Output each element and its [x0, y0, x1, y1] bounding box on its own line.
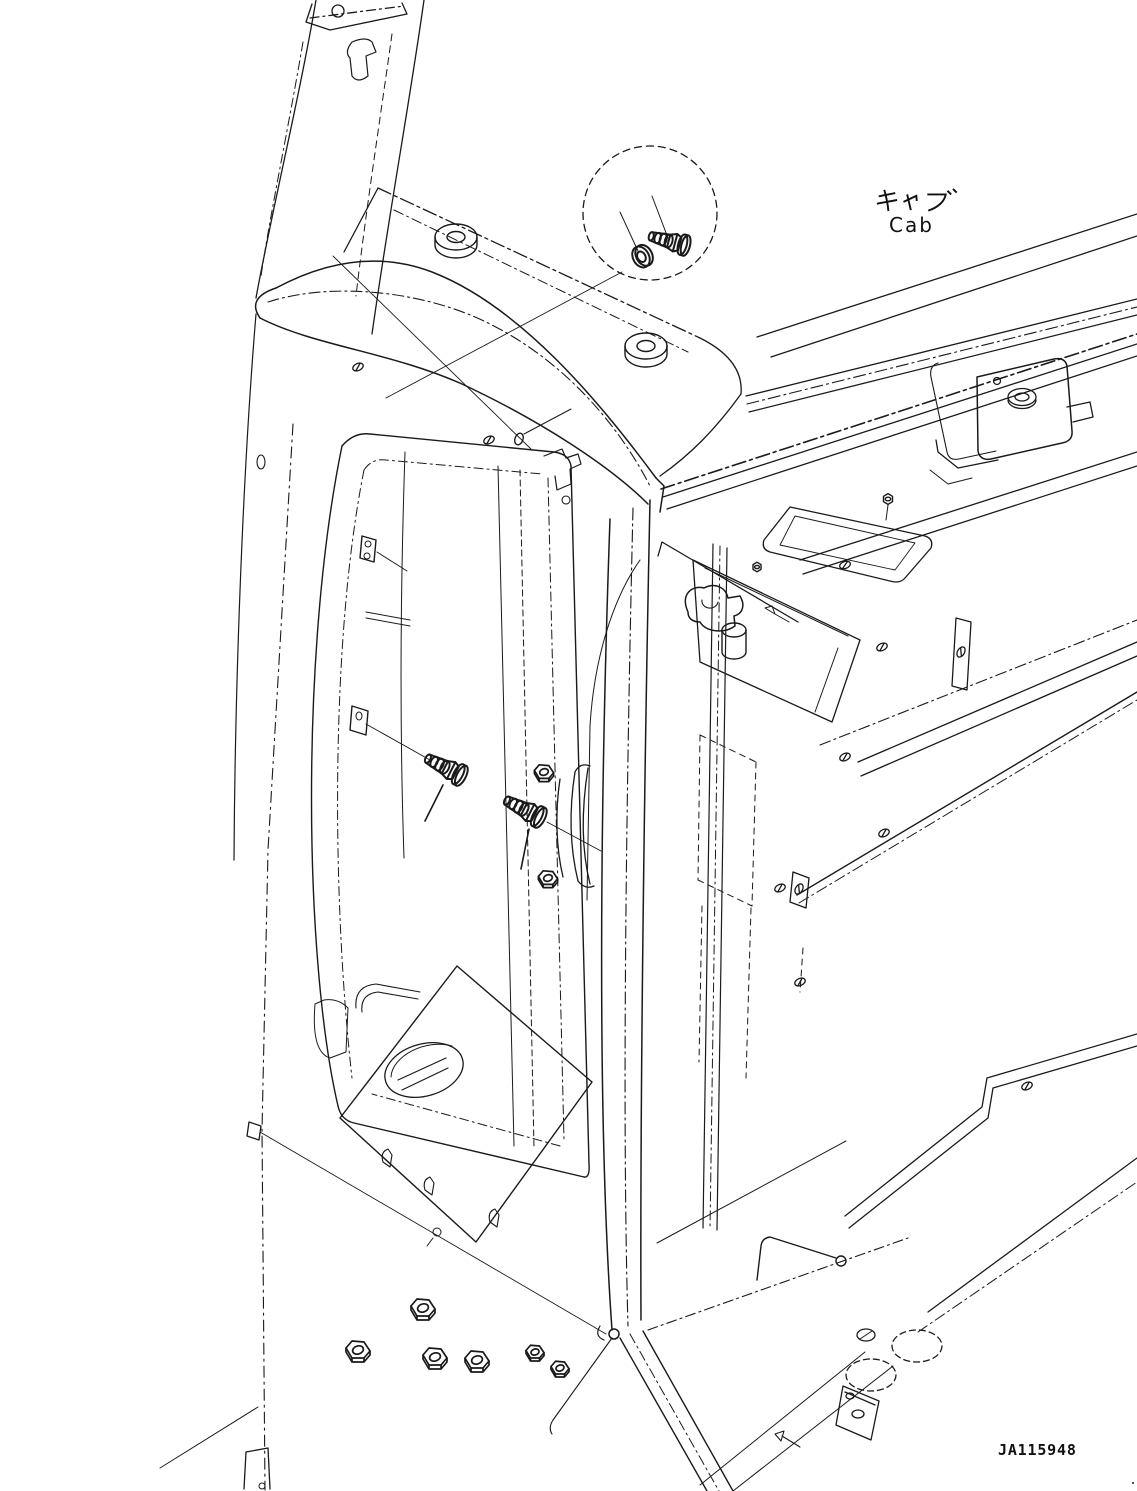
hex-nut-icon [465, 1351, 489, 1372]
leader-line [547, 822, 601, 851]
flange-bolt-icon [421, 748, 471, 788]
right-side-panels [774, 452, 1137, 1332]
screw-hole [878, 828, 891, 839]
wire-rod [757, 1237, 836, 1280]
screw-hole [1021, 1081, 1034, 1092]
screw-icon [753, 562, 761, 572]
roof-boss [625, 333, 667, 367]
screw-hole [483, 435, 496, 446]
screw-hole [774, 883, 787, 894]
door-edge [160, 314, 606, 1490]
pillar-foot [609, 1329, 619, 1339]
roof-front-rail [256, 261, 664, 512]
screw-axis-line [333, 256, 531, 449]
roof-mount-bracket [930, 359, 1093, 484]
hinge-hole [257, 455, 265, 469]
hex-nut-icon [423, 1348, 447, 1369]
bottom-hex-nuts [346, 1299, 569, 1377]
screw-hole [794, 977, 807, 988]
washer-icon [629, 242, 657, 271]
hex-nut-icon [551, 1361, 569, 1377]
mount-tab [247, 1122, 261, 1140]
bolt-axis-line [425, 785, 443, 821]
screw-hole [955, 645, 967, 658]
detail-callout [386, 146, 717, 398]
mounting-bolt-1 [366, 724, 470, 821]
rear-hatch-opening [763, 494, 932, 582]
screw-icon [884, 494, 893, 505]
mount-tab [360, 536, 376, 562]
lift-hook [685, 586, 742, 631]
screw-hole [876, 642, 889, 653]
screw-hole [793, 882, 805, 895]
flange-bolt-icon [646, 226, 692, 257]
mount-strip [401, 452, 405, 858]
cab-label-japanese [876, 188, 964, 212]
screw-hole [352, 362, 365, 373]
component-label: Cab [876, 188, 972, 237]
mounting-bolt-2 [500, 790, 601, 869]
b-pillar [598, 500, 727, 1340]
callout-leader-line [386, 272, 622, 398]
parts-diagram-page: Cab JA115948 [0, 0, 1137, 1491]
inner-structure [587, 542, 908, 1330]
roof-beam [746, 214, 1137, 412]
floor-hole [892, 1330, 942, 1362]
screw-hole [839, 752, 852, 763]
leader-line [366, 724, 430, 760]
door-window-frame [312, 434, 595, 1177]
fastener-axis-lines [620, 196, 668, 251]
floor-hole [846, 1359, 896, 1391]
kick-panel [314, 966, 592, 1246]
cab-label-english: Cab [889, 213, 972, 237]
roof-boss [435, 224, 477, 258]
drip-rail [661, 334, 1137, 509]
hex-nut-icon [538, 871, 557, 888]
a-pillar [256, 0, 424, 334]
drawing-number: JA115948 [998, 1441, 1077, 1459]
clip-bracket [347, 39, 376, 80]
arrow-mark [775, 1431, 800, 1447]
hex-nut-icon [534, 765, 553, 782]
hex-nut-icon [526, 1345, 544, 1361]
hex-nut-icon [411, 1299, 435, 1320]
flange-bolt-icon [500, 790, 550, 830]
hex-nut-icon [346, 1341, 370, 1362]
panel-clips [382, 1149, 499, 1227]
